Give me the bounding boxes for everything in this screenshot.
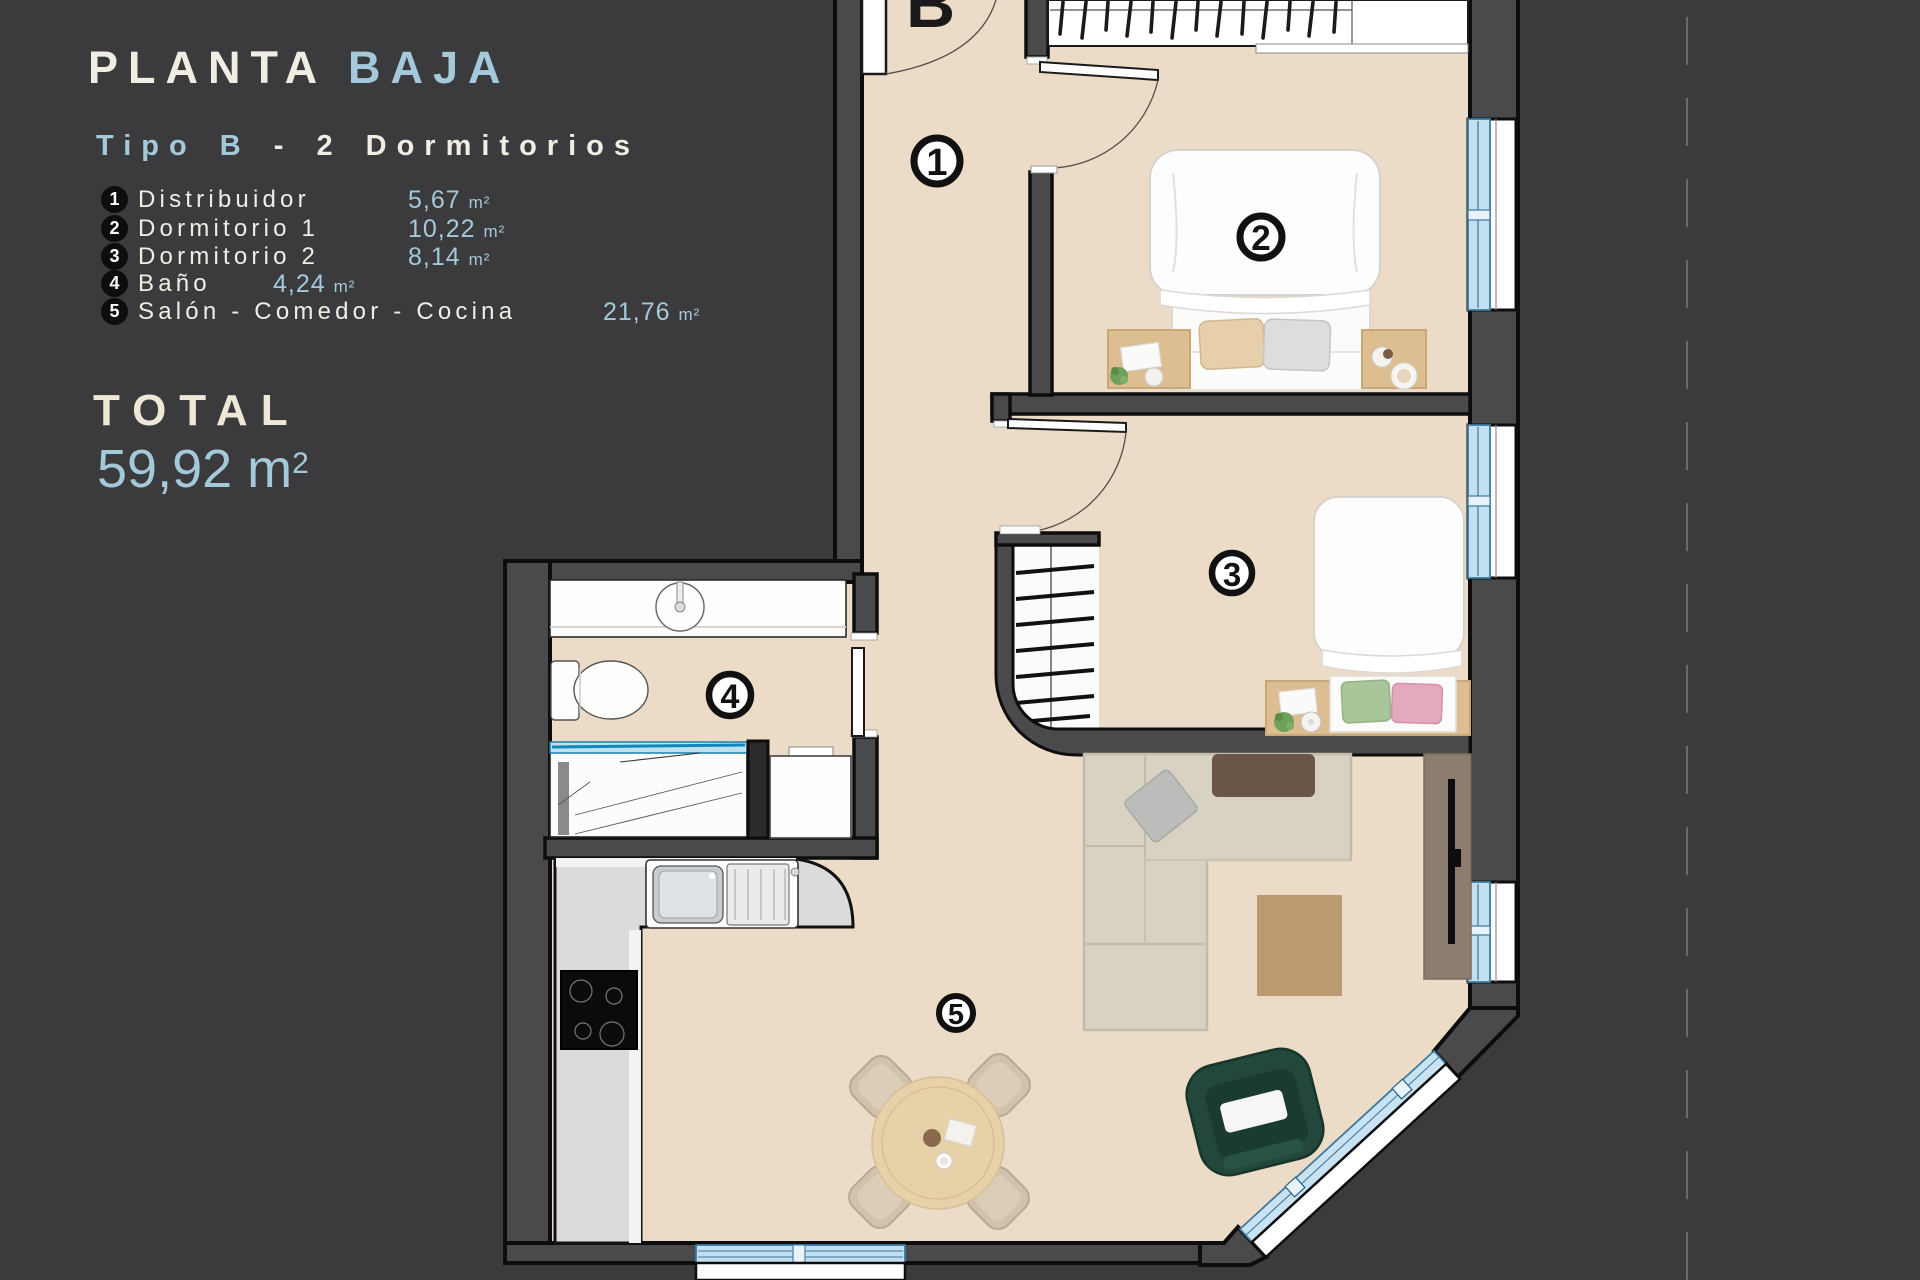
svg-text:3: 3 [1223,556,1241,593]
svg-text:B: B [906,0,955,42]
svg-text:4: 4 [721,678,740,716]
svg-text:5: 5 [948,999,964,1031]
svg-text:1: 1 [926,142,947,184]
svg-text:2: 2 [1251,219,1270,258]
